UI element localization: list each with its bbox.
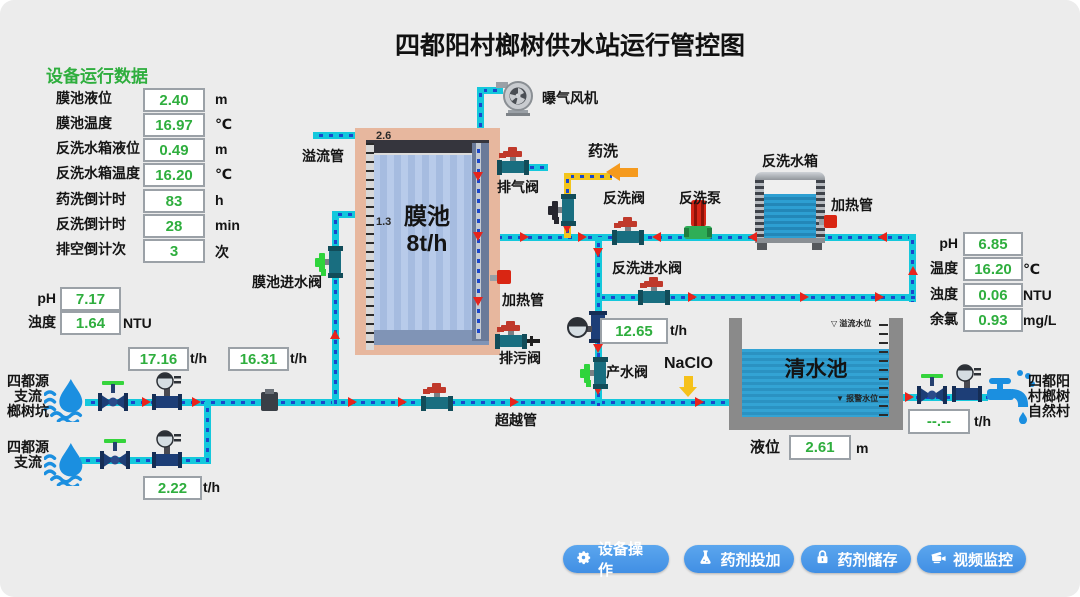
camera-icon (930, 549, 947, 570)
pipe-tributary-riser (204, 402, 211, 462)
membrane-tank-top-bar (366, 140, 489, 155)
outlet-turbidity-unit: NTU (1023, 287, 1052, 303)
flow-product-value: 12.65 (600, 318, 668, 344)
flow-village-outlet-unit: t/h (974, 413, 991, 429)
product-meter-flange (589, 311, 607, 315)
naclo-arrow-stem (684, 376, 693, 387)
chemical-wash-valve[interactable] (548, 193, 578, 227)
chemical-storage-button-label: 药剂储存 (837, 549, 897, 570)
product-valve-label: 产水阀 (606, 365, 648, 380)
flow-arrow-up (330, 330, 340, 339)
device-row-label: 反洗水箱液位 (56, 141, 140, 156)
device-row-unit: m (215, 91, 227, 107)
device-row-unit: min (215, 217, 240, 233)
device-row-value: 28 (143, 214, 205, 238)
pipe-chemical-wash-h (564, 173, 612, 180)
membrane-tank-name: 膜池 8t/h (383, 203, 471, 257)
tank-heater-label: 加热管 (831, 198, 873, 213)
backwash-tank-headspace (764, 180, 816, 194)
backwash-valve[interactable] (611, 217, 645, 247)
clear-pool-ruler (879, 324, 888, 420)
device-row-unit: ℃ (215, 116, 232, 133)
device-row-value: 2.40 (143, 88, 205, 112)
flow-arrow-down (473, 232, 483, 241)
chemical-storage-button[interactable]: 药剂储存 (801, 545, 911, 573)
lock-icon (814, 549, 831, 570)
aeration-fan[interactable] (496, 80, 536, 116)
membrane-heater-label: 加热管 (502, 293, 544, 308)
flow-arrow-right (695, 397, 704, 407)
chemical-dosing-button[interactable]: 药剂投加 (684, 545, 794, 573)
flow-arrow-up (908, 266, 918, 275)
outlet-chlorine-value: 0.93 (963, 308, 1023, 332)
device-row-label: 膜池液位 (56, 91, 112, 106)
flow-arrow-right (800, 292, 809, 302)
flow-village-outlet-value: --.-- (908, 409, 970, 434)
clear-pool-left-wall (729, 318, 742, 430)
device-panel-header: 设备运行数据 (46, 62, 148, 87)
pipe-inlet-bypass (85, 399, 740, 406)
inlet-ph-label: pH (22, 291, 56, 306)
exhaust-valve-label: 排气阀 (497, 180, 539, 195)
backwash-tank-leg (812, 243, 822, 250)
tank-heater-element[interactable] (824, 215, 837, 228)
village-outlet-valve[interactable] (917, 374, 947, 408)
outlet-ph-label: pH (918, 236, 958, 251)
product-meter-display (567, 317, 588, 338)
source-1-flow-meter[interactable] (152, 372, 182, 412)
flow-arrow-right (578, 232, 587, 242)
naclo-arrow-icon (679, 387, 697, 397)
gear-icon (575, 549, 592, 570)
flow-arrow-left (878, 232, 887, 242)
membrane-tank-floor (366, 330, 489, 345)
outlet-temp-label: 温度 (918, 261, 958, 276)
device-row-value: 16.97 (143, 113, 205, 137)
video-monitor-button[interactable]: 视频监控 (917, 545, 1026, 573)
chemical-dosing-button-label: 药剂投加 (720, 549, 780, 570)
device-row-label: 药洗倒计时 (56, 192, 126, 207)
clear-pool-name: 清水池 (760, 362, 872, 377)
backwash-valve-label: 反洗阀 (603, 191, 645, 206)
overflow-pipe-label: 溢流管 (302, 149, 344, 164)
inlet-turbidity-value: 1.64 (60, 311, 121, 335)
destination-label: 四都阳 村榔树 自然村 (1022, 374, 1076, 419)
flow-arrow-right (520, 232, 529, 242)
flow-product-unit: t/h (670, 322, 687, 338)
flow-arrow-left (652, 232, 661, 242)
flow-inlet-main-unit: t/h (190, 350, 207, 366)
flow-arrow-down (593, 344, 603, 353)
device-operation-button-label: 设备操作 (598, 538, 657, 580)
pool-level-label: 液位 (750, 440, 780, 455)
naclo-label: NaClO (664, 356, 713, 371)
drain-flange (530, 336, 533, 346)
backwash-tank-left-column (755, 180, 764, 240)
flow-arrow-right (875, 292, 884, 302)
chemical-wash-arrow-stem (620, 168, 638, 177)
backwash-tank-label: 反洗水箱 (762, 154, 818, 169)
device-row-label: 膜池温度 (56, 116, 112, 131)
device-row-value: 83 (143, 189, 205, 213)
device-row-unit: 次 (215, 242, 229, 262)
pool-level-unit: m (856, 440, 868, 456)
outlet-ph-value: 6.85 (963, 232, 1023, 256)
village-outlet-flow-meter[interactable] (952, 364, 982, 404)
membrane-scale-top: 2.6 (376, 130, 391, 142)
flask-icon (697, 549, 714, 570)
aeration-fan-label: 曝气风机 (542, 91, 598, 106)
backwash-inlet-valve-label: 反洗进水阀 (612, 261, 682, 276)
pool-level-value: 2.61 (789, 435, 851, 460)
chemical-wash-arrow-icon (606, 163, 620, 181)
bypass-pipe-label: 超越管 (495, 413, 537, 428)
flow-arrow-right (510, 397, 519, 407)
backwash-inlet-valve[interactable] (637, 277, 671, 307)
flow-arrow-down (593, 248, 603, 257)
flow-arrow-left (748, 232, 757, 242)
device-row-unit: h (215, 192, 224, 208)
source-2-gate-valve[interactable] (100, 439, 130, 473)
backwash-pump-label: 反洗泵 (679, 191, 721, 206)
clear-pool-right-wall (889, 318, 903, 430)
alarm-level-marker: ▼ 报警水位 (836, 393, 878, 404)
flow-inlet-main-value: 17.16 (128, 347, 189, 371)
source-2-label: 四都源 支流 (2, 440, 54, 470)
inlet-turbidity-unit: NTU (123, 315, 152, 331)
outlet-turbidity-label: 浊度 (918, 287, 958, 302)
device-operation-button[interactable]: 设备操作 (563, 545, 669, 573)
device-row-value: 3 (143, 239, 205, 263)
device-row-value: 0.49 (143, 138, 205, 162)
membrane-tank-ruler (366, 143, 374, 350)
source-1-label: 四都源 支流 榔树坑 (2, 374, 54, 419)
flow-arrow-right (192, 397, 201, 407)
flow-inlet-total-value: 16.31 (228, 347, 289, 371)
backwash-tank-right-column (816, 180, 825, 240)
device-row-unit: m (215, 141, 227, 157)
backwash-tank-water (764, 194, 816, 238)
flow-arrow-right (348, 397, 357, 407)
pipe-coupling (261, 392, 278, 411)
exhaust-valve[interactable] (496, 147, 530, 177)
pipe-coupling-cap (265, 389, 274, 394)
outlet-chlorine-label: 余氯 (918, 312, 958, 327)
device-row-value: 16.20 (143, 163, 205, 187)
flow-arrow-right (398, 397, 407, 407)
source-2-flow-meter[interactable] (152, 430, 182, 470)
page-title: 四都阳村榔树供水站运行管控图 (270, 26, 870, 62)
device-row-label: 排空倒计次 (56, 242, 126, 257)
backwash-pump[interactable] (682, 200, 714, 242)
outlet-chlorine-unit: mg/L (1023, 312, 1056, 328)
flow-arrow-down (473, 297, 483, 306)
scada-canvas: 四都阳村榔树供水站运行管控图 设备运行数据 膜池液位 2.40 m 膜池温度 1… (0, 0, 1080, 597)
flow-arrow-right (905, 392, 914, 402)
flow-tributary-value: 2.22 (143, 476, 202, 500)
overflow-level-marker: ▽ 溢流水位 (831, 318, 871, 329)
flow-arrow-right (688, 292, 697, 302)
clear-pool-floor (729, 417, 903, 430)
membrane-heater-element[interactable] (497, 270, 511, 284)
flow-arrow-down (473, 172, 483, 181)
pipe-membrane-feed-riser (332, 214, 339, 406)
inlet-turbidity-label: 浊度 (22, 315, 56, 330)
inlet-ph-value: 7.17 (60, 287, 121, 311)
flow-arrow-right (142, 397, 151, 407)
bypass-valve[interactable] (420, 383, 454, 413)
device-row-unit: ℃ (215, 166, 232, 183)
outlet-turbidity-value: 0.06 (963, 283, 1023, 307)
video-monitor-button-label: 视频监控 (953, 549, 1013, 570)
drain-valve[interactable] (494, 321, 528, 351)
backwash-tank-leg (757, 243, 767, 250)
drain-valve-label: 排污阀 (499, 351, 541, 366)
flow-tributary-unit: t/h (203, 479, 220, 495)
device-row-label: 反洗倒计时 (56, 217, 126, 232)
membrane-inlet-valve-label: 膜池进水阀 (252, 275, 322, 290)
outlet-temp-unit: ℃ (1023, 261, 1040, 278)
membrane-scale-mid: 1.3 (376, 216, 391, 228)
flow-inlet-total-unit: t/h (290, 350, 307, 366)
chemical-wash-label: 药洗 (588, 144, 618, 159)
pipe-overflow (313, 132, 360, 139)
source-1-gate-valve[interactable] (98, 381, 128, 415)
device-row-label: 反洗水箱温度 (56, 166, 140, 181)
outlet-temp-value: 16.20 (963, 257, 1023, 281)
